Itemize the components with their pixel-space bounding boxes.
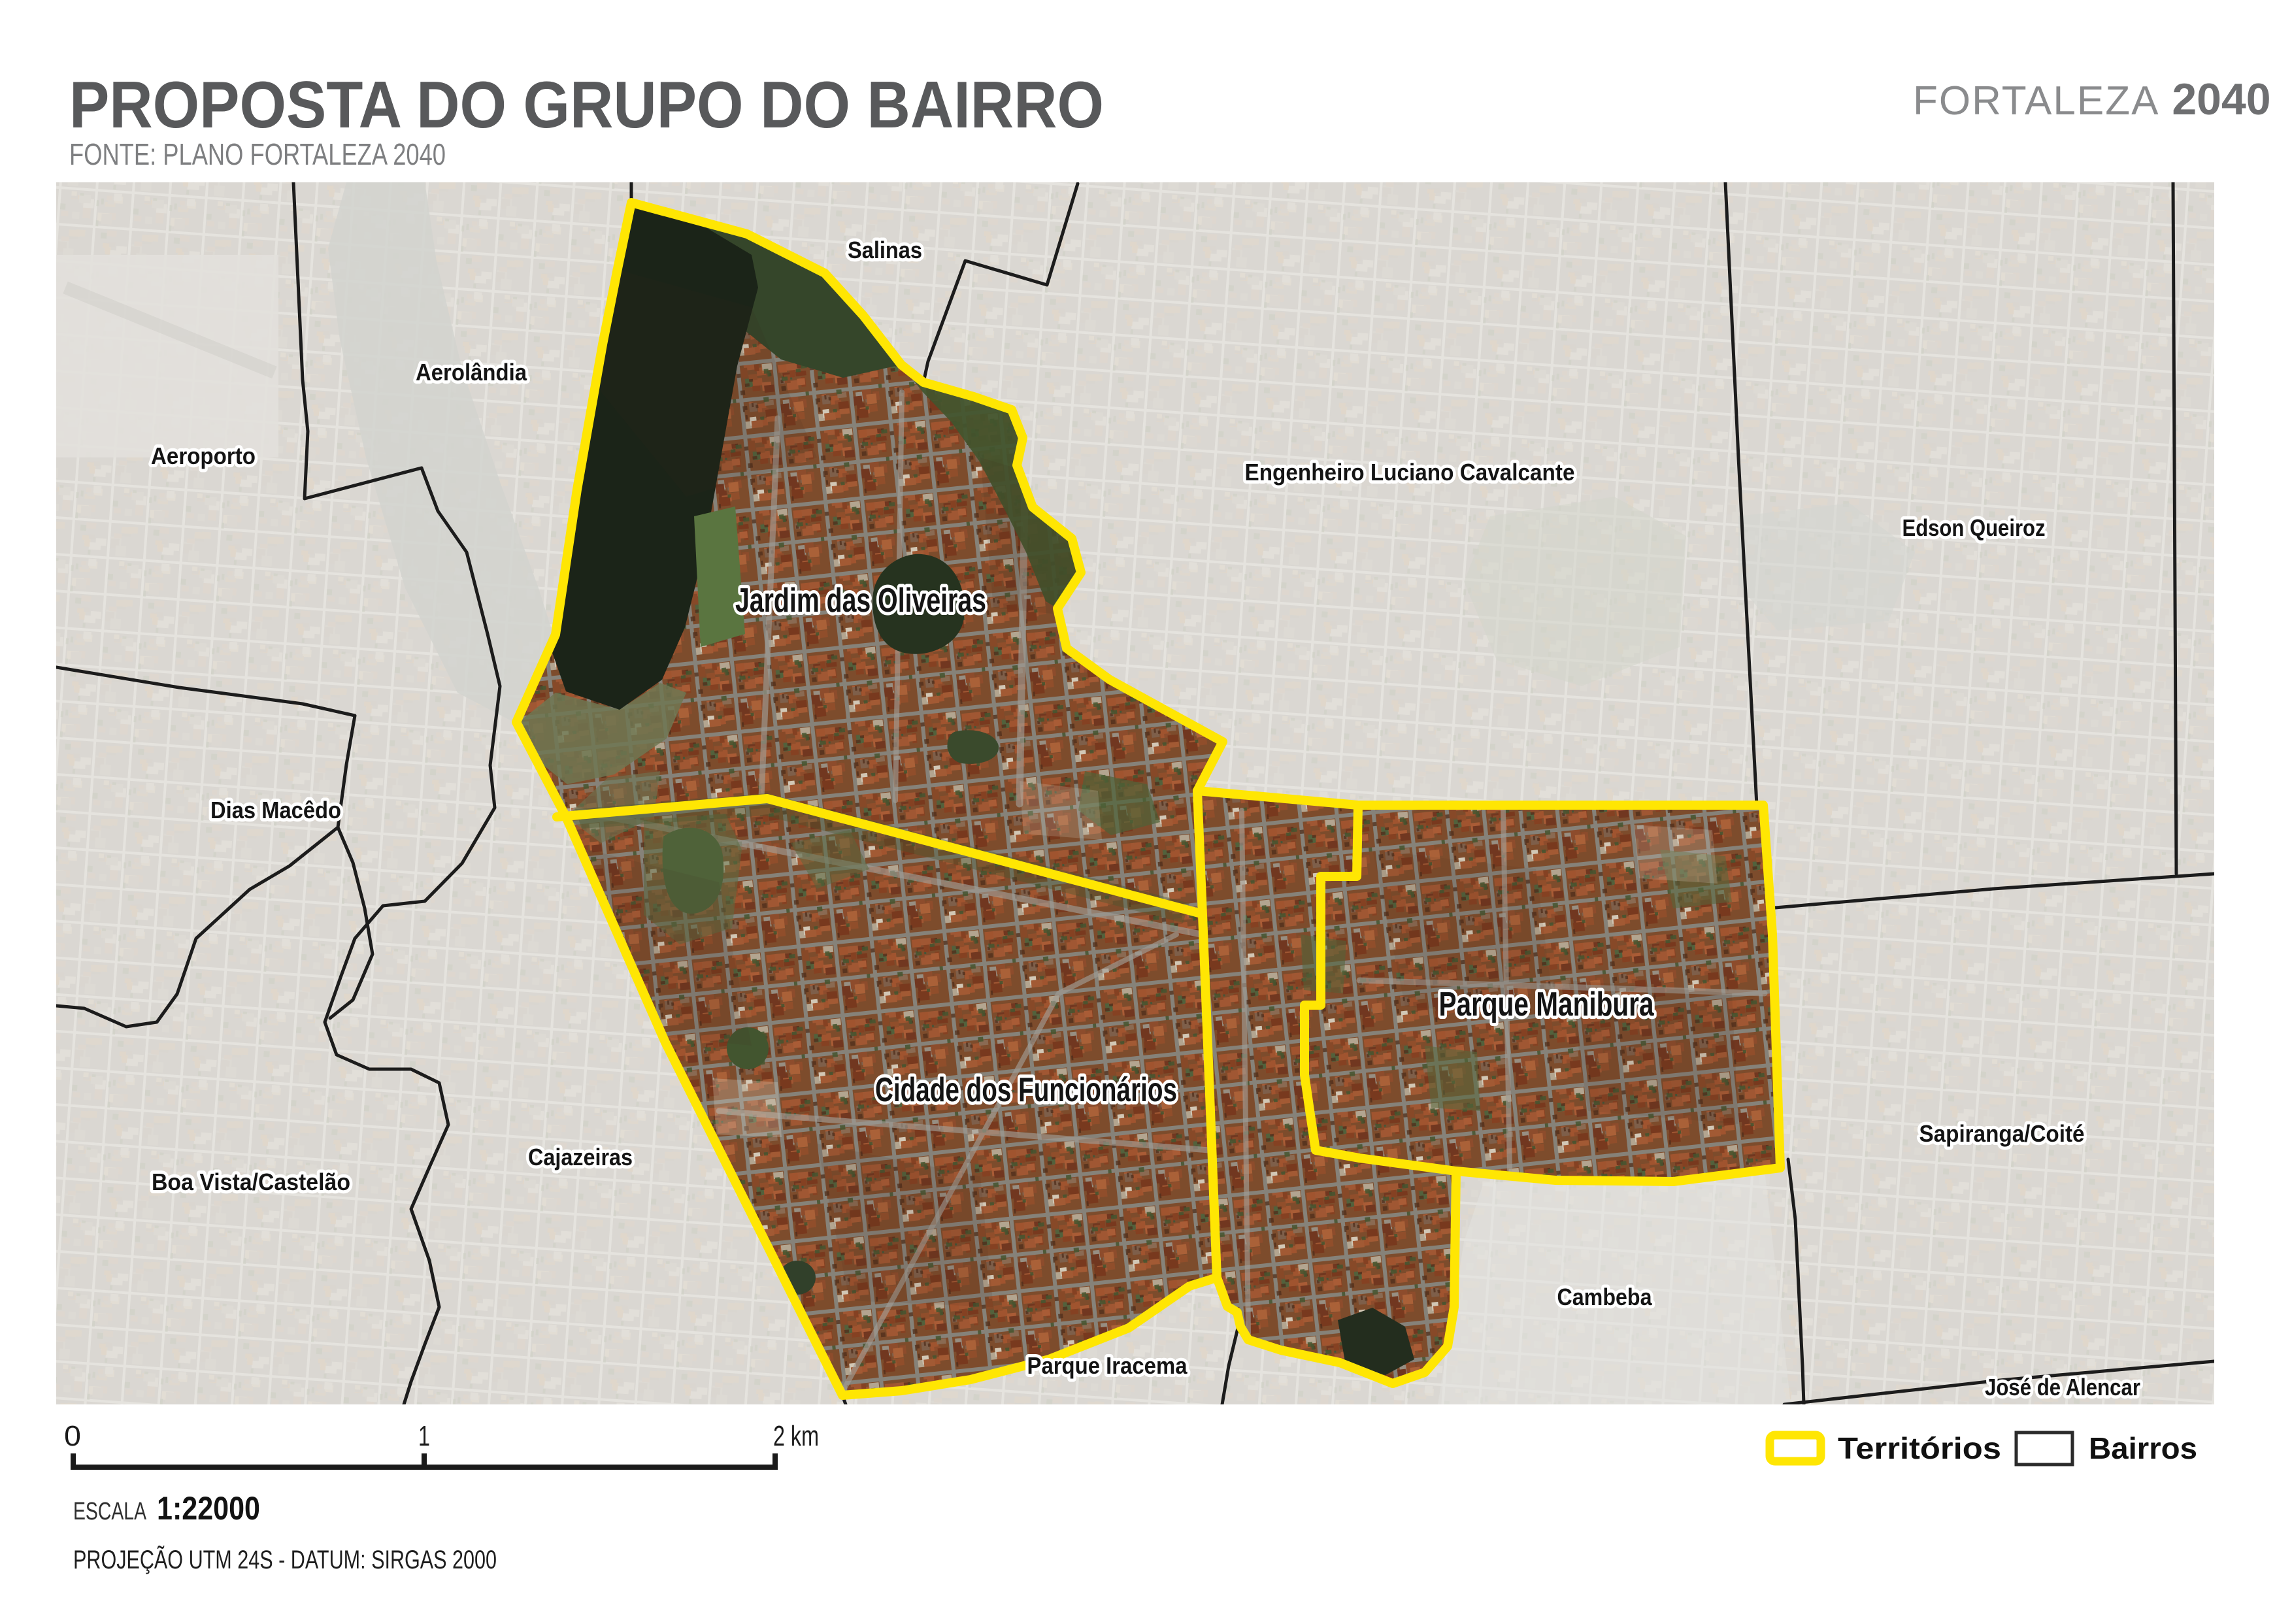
svg-text:2 km: 2 km <box>773 1420 819 1452</box>
svg-text:Parque Iracema: Parque Iracema <box>1027 1352 1188 1379</box>
svg-text:1: 1 <box>418 1420 430 1452</box>
svg-text:Parque Manibura: Parque Manibura <box>1439 986 1655 1023</box>
svg-text:Engenheiro Luciano Cavalcante: Engenheiro Luciano Cavalcante <box>1245 459 1575 486</box>
svg-text:Salinas: Salinas <box>848 237 922 263</box>
svg-text:José de Alencar: José de Alencar <box>1985 1374 2140 1400</box>
svg-text:FORTALEZA 2040: FORTALEZA 2040 <box>1913 75 2271 124</box>
svg-text:PROJEÇÃO UTM 24S - DATUM: SIRG: PROJEÇÃO UTM 24S - DATUM: SIRGAS 2000 <box>73 1545 497 1574</box>
svg-text:Jardim das Oliveiras: Jardim das Oliveiras <box>735 582 986 620</box>
svg-text:1:22000: 1:22000 <box>157 1490 260 1527</box>
svg-text:Dias Macêdo: Dias Macêdo <box>210 797 341 823</box>
svg-text:Edson Queiroz: Edson Queiroz <box>1902 514 2046 541</box>
svg-text:PROPOSTA DO GRUPO DO BAIRRO: PROPOSTA DO GRUPO DO BAIRRO <box>69 69 1104 142</box>
svg-text:Aeroporto: Aeroporto <box>151 442 256 469</box>
svg-text:Bairros: Bairros <box>2089 1431 2197 1465</box>
svg-text:Sapiranga/Coité: Sapiranga/Coité <box>1919 1120 2085 1147</box>
svg-text:ESCALA: ESCALA <box>73 1498 146 1525</box>
svg-text:Territórios: Territórios <box>1838 1431 2001 1465</box>
svg-text:Aerolândia: Aerolândia <box>416 359 527 386</box>
svg-text:Cambeba: Cambeba <box>1557 1284 1653 1310</box>
svg-text:FONTE: PLANO FORTALEZA 2040: FONTE: PLANO FORTALEZA 2040 <box>69 137 446 171</box>
svg-text:Boa Vista/Castelão: Boa Vista/Castelão <box>152 1168 350 1195</box>
svg-text:0: 0 <box>64 1420 81 1452</box>
svg-text:Cidade dos Funcionários: Cidade dos Funcionários <box>875 1071 1177 1109</box>
svg-text:Cajazeiras: Cajazeiras <box>528 1144 633 1170</box>
